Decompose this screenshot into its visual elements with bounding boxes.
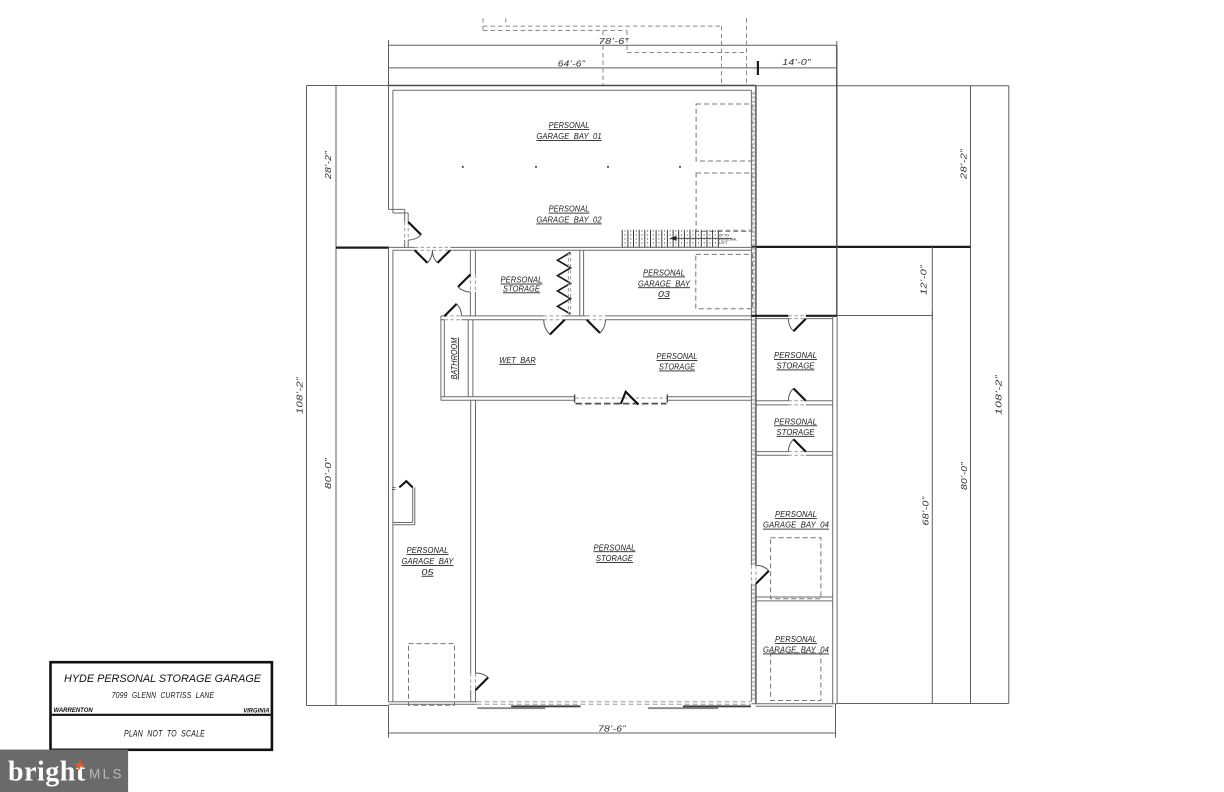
svg-text:STORAGE: STORAGE xyxy=(659,362,695,372)
svg-text:MLS: MLS xyxy=(89,766,124,781)
svg-text:PERSONAL: PERSONAL xyxy=(549,120,590,130)
svg-text:28’-2”: 28’-2” xyxy=(324,150,333,181)
svg-text:PERSONAL: PERSONAL xyxy=(774,350,817,360)
svg-text:VIRGINIA: VIRGINIA xyxy=(243,707,270,714)
svg-text:WARRENTON: WARRENTON xyxy=(54,707,94,714)
svg-text:PERSONAL: PERSONAL xyxy=(549,204,590,214)
svg-text:PERSONAL: PERSONAL xyxy=(407,545,449,555)
svg-text:64’-6”: 64’-6” xyxy=(558,60,587,69)
svg-text:78’-6”: 78’-6” xyxy=(598,725,627,734)
svg-text:28’-2”: 28’-2” xyxy=(960,148,969,181)
svg-text:03: 03 xyxy=(658,289,670,299)
svg-text:12’-0”: 12’-0” xyxy=(919,264,928,295)
svg-text:80’-0”: 80’-0” xyxy=(960,461,969,490)
svg-text:PERSONAL: PERSONAL xyxy=(594,542,636,552)
svg-text:108’-2”: 108’-2” xyxy=(995,373,1004,415)
svg-text:PLAN NOT TO SCALE: PLAN NOT TO SCALE xyxy=(124,729,205,739)
svg-text:05: 05 xyxy=(422,567,434,577)
svg-text:GARAGE BAY 04: GARAGE BAY 04 xyxy=(763,520,829,530)
svg-text:14’-0”: 14’-0” xyxy=(782,58,812,67)
svg-text:PERSONAL: PERSONAL xyxy=(775,634,817,644)
svg-text:BATHROOM: BATHROOM xyxy=(449,338,459,380)
svg-text:80’-0”: 80’-0” xyxy=(324,457,333,489)
svg-text:68’-0”: 68’-0” xyxy=(922,495,931,525)
svg-text:STORAGE: STORAGE xyxy=(777,361,815,371)
svg-text:STORAGE: STORAGE xyxy=(596,553,633,563)
svg-text:PERSONAL: PERSONAL xyxy=(775,509,817,519)
svg-text:GARAGE BAY: GARAGE BAY xyxy=(402,556,455,566)
svg-text:PERSONAL: PERSONAL xyxy=(643,268,685,278)
svg-text:GARAGE BAY: GARAGE BAY xyxy=(638,278,691,288)
svg-text:PERSONAL: PERSONAL xyxy=(774,416,817,426)
svg-text:108’-2”: 108’-2” xyxy=(295,376,304,414)
svg-text:WET BAR: WET BAR xyxy=(499,355,536,365)
svg-text:HYDE PERSONAL STORAGE GARAGE: HYDE PERSONAL STORAGE GARAGE xyxy=(64,673,262,685)
svg-text:7099 GLENN CURTISS LANE: 7099 GLENN CURTISS LANE xyxy=(112,690,215,700)
svg-text:PERSONAL: PERSONAL xyxy=(657,351,698,361)
svg-text:STORAGE: STORAGE xyxy=(777,427,815,437)
svg-text:STORAGE: STORAGE xyxy=(503,283,540,293)
svg-text:bright: bright xyxy=(8,757,86,788)
svg-text:GARAGE BAY 01: GARAGE BAY 01 xyxy=(536,131,601,141)
svg-text:LOFT: LOFT xyxy=(719,241,728,245)
svg-text:GARAGE BAY 02: GARAGE BAY 02 xyxy=(536,215,602,225)
